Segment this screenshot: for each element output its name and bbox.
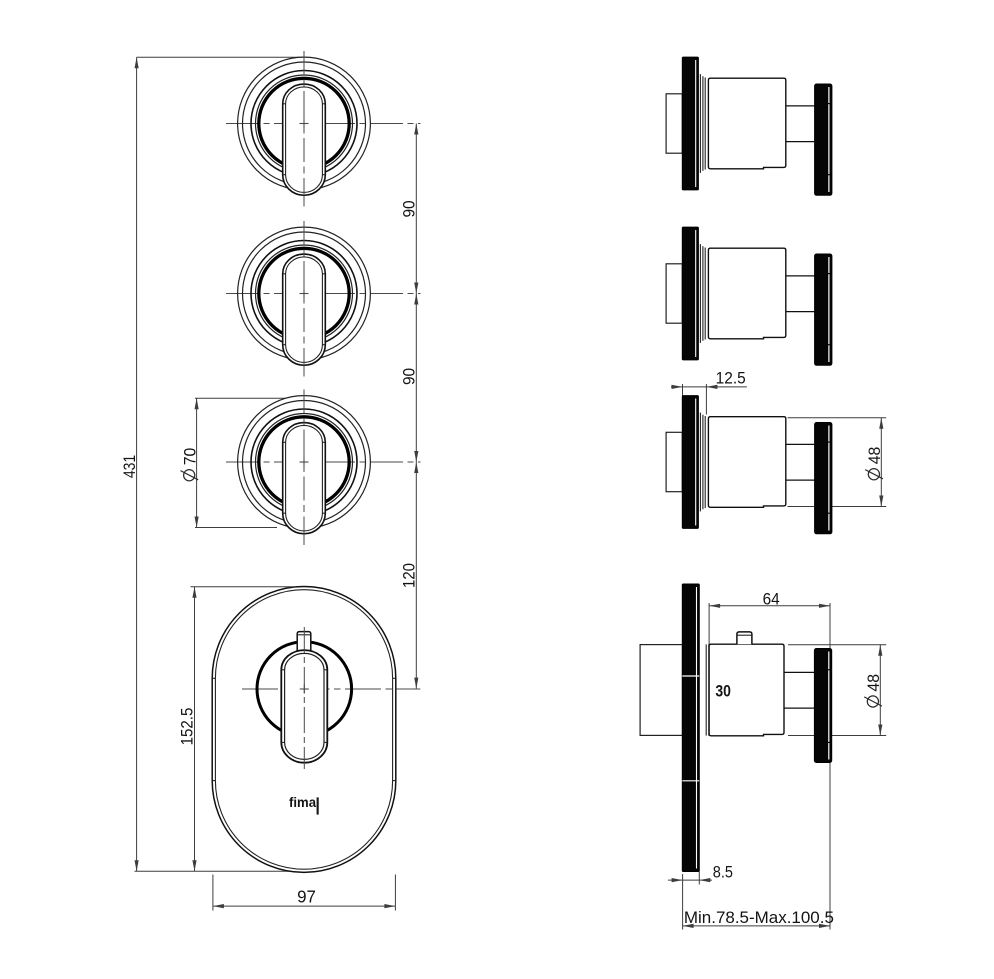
svg-text:30: 30 [715,681,731,700]
svg-text:431: 431 [120,455,139,478]
svg-text:48: 48 [864,674,883,692]
svg-text:48: 48 [865,447,884,465]
svg-text:97: 97 [297,886,316,906]
svg-text:64: 64 [763,590,780,609]
svg-text:90: 90 [400,200,419,217]
svg-text:Min.78.5-Max.100.5: Min.78.5-Max.100.5 [684,908,834,927]
svg-text:12.5: 12.5 [716,368,746,387]
svg-text:120: 120 [399,563,418,588]
svg-text:70: 70 [180,448,199,466]
svg-text:90: 90 [400,368,419,385]
svg-text:152.5: 152.5 [178,708,197,746]
svg-text:8.5: 8.5 [713,863,733,882]
svg-text:fima: fima [289,794,316,810]
